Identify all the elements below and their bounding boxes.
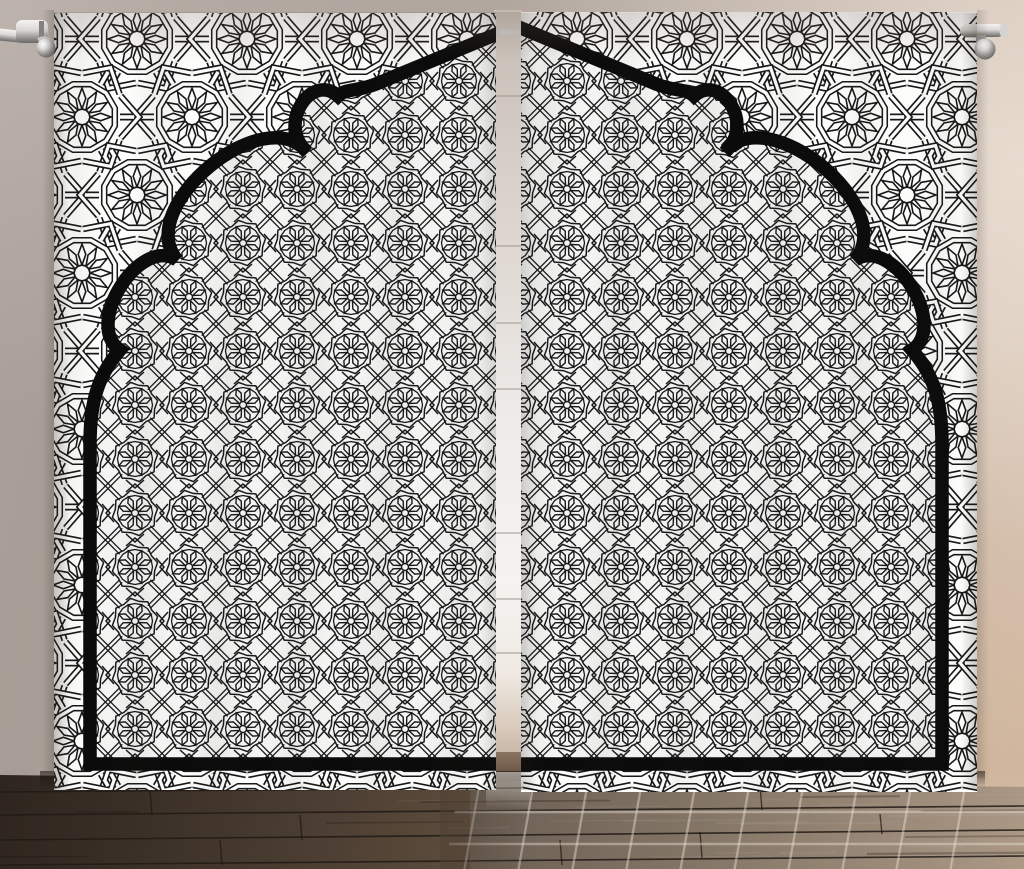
curtain-rod-left-bracket	[0, 20, 55, 58]
rod-right-ball	[975, 39, 996, 60]
rod-left-ball	[37, 39, 56, 58]
curtains-graphic	[0, 0, 1024, 869]
rod-shadow-on-fabric	[54, 12, 977, 60]
product-photo	[0, 0, 1024, 869]
rod-right-cap	[1000, 23, 1009, 38]
